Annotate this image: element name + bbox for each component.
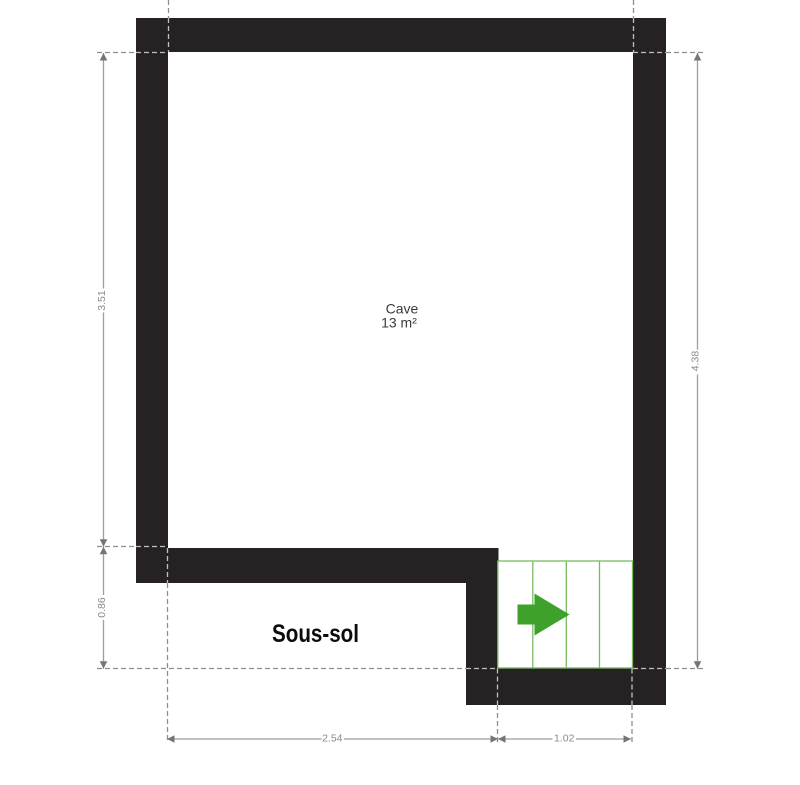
svg-text:Sous-sol: Sous-sol: [272, 620, 359, 648]
svg-text:3.51: 3.51: [96, 290, 108, 311]
svg-text:0.86: 0.86: [96, 597, 108, 618]
svg-text:4.38: 4.38: [689, 351, 701, 372]
svg-text:1.02: 1.02: [554, 733, 575, 745]
svg-text:13 m²: 13 m²: [381, 315, 417, 331]
svg-text:2.54: 2.54: [322, 733, 343, 745]
